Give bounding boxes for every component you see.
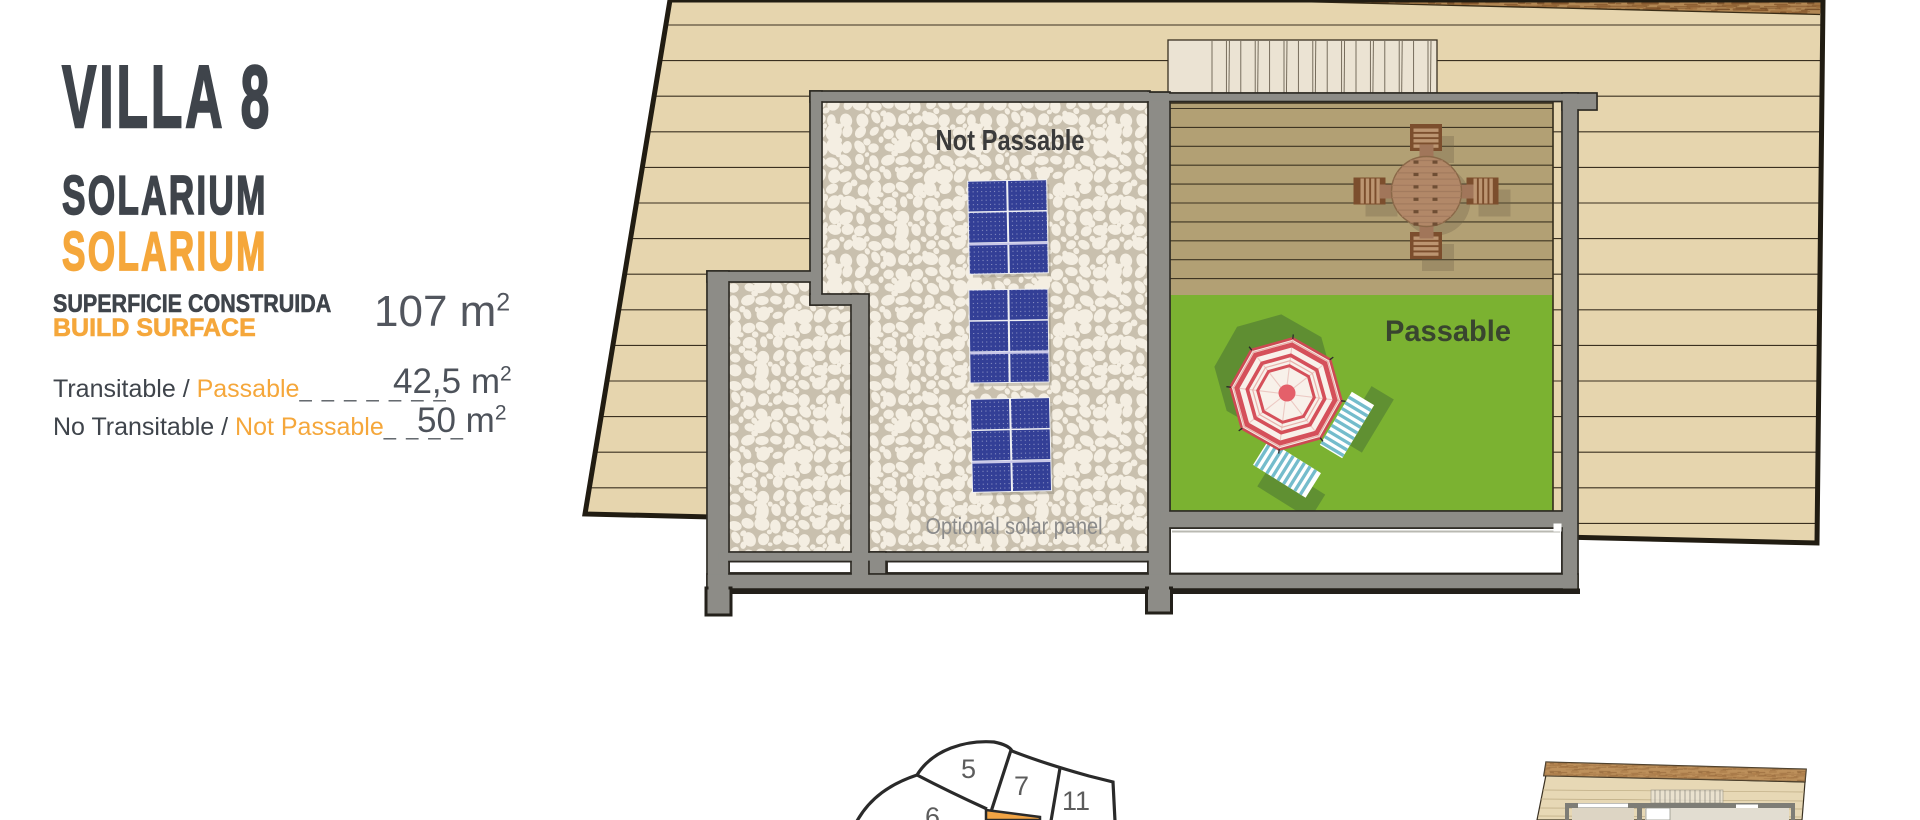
svg-text:11: 11 [1062, 786, 1090, 816]
svg-text:Passable: Passable [1385, 315, 1511, 348]
svg-text:5: 5 [961, 754, 976, 784]
svg-text:6: 6 [925, 802, 940, 820]
svg-text:Not Passable: Not Passable [936, 125, 1085, 157]
svg-text:7: 7 [1014, 771, 1029, 801]
svg-text:Optional solar panel: Optional solar panel [926, 513, 1103, 539]
